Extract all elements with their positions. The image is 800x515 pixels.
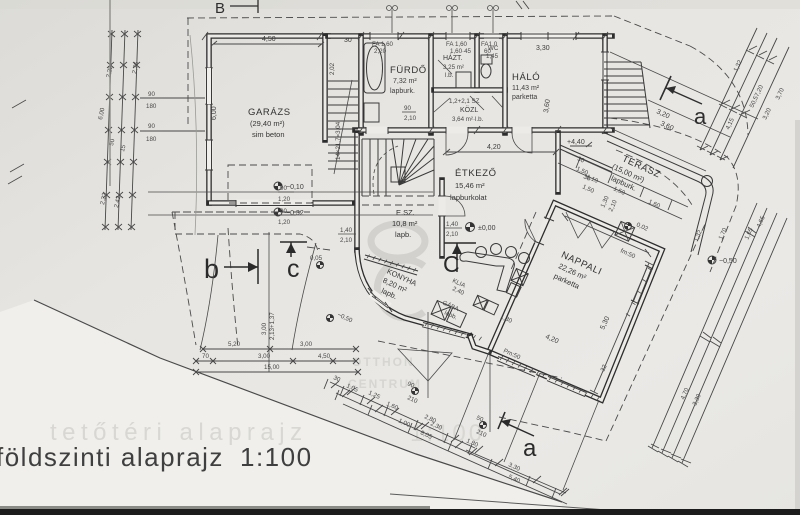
svg-text:90: 90 (148, 91, 155, 98)
svg-text:l.b.: l.b. (445, 72, 454, 79)
svg-text:15,00: 15,00 (264, 364, 280, 371)
svg-text:HÁLÓ: HÁLÓ (512, 72, 540, 83)
svg-text:sim beton: sim beton (252, 130, 285, 139)
svg-text:4,50: 4,50 (318, 353, 331, 360)
svg-text:2,13+1,37: 2,13+1,37 (269, 312, 276, 340)
svg-text:180: 180 (146, 136, 157, 143)
svg-text:90: 90 (280, 185, 287, 192)
svg-text:b: b (204, 254, 219, 284)
svg-text:70: 70 (202, 353, 209, 360)
svg-text:c: c (287, 255, 300, 283)
svg-text:90: 90 (404, 105, 411, 112)
svg-text:11,43 m²: 11,43 m² (512, 85, 540, 92)
svg-text:3,25 m²: 3,25 m² (443, 64, 464, 71)
svg-text:lapb.: lapb. (395, 230, 411, 239)
svg-text:2,10: 2,10 (446, 231, 459, 238)
svg-text:4,50: 4,50 (262, 36, 276, 43)
svg-text:5,20: 5,20 (228, 341, 241, 348)
svg-text:1:100: 1:100 (240, 442, 313, 472)
svg-text:FÜRDŐ: FÜRDŐ (390, 65, 427, 76)
svg-text:±0,00: ±0,00 (478, 225, 496, 232)
svg-text:4,20: 4,20 (487, 144, 501, 151)
svg-text:10,8 m²: 10,8 m² (392, 219, 418, 228)
svg-text:2,10: 2,10 (340, 237, 353, 244)
svg-text:90: 90 (280, 208, 287, 215)
svg-text:B: B (215, 0, 225, 17)
svg-text:GARÁZS: GARÁZS (248, 107, 291, 118)
svg-text:a: a (694, 104, 707, 129)
svg-text:3,00: 3,00 (300, 341, 313, 348)
svg-text:60: 60 (484, 48, 491, 55)
svg-text:3,00: 3,00 (261, 322, 268, 335)
svg-text:15,46 m²: 15,46 m² (455, 181, 485, 190)
svg-text:−0,50: −0,50 (719, 258, 737, 265)
svg-text:14×21,7=3,04: 14×21,7=3,04 (335, 121, 342, 160)
svg-text:C: C (443, 251, 460, 277)
svg-text:3,30: 3,30 (536, 45, 550, 52)
svg-text:KÖZL: KÖZL (460, 106, 478, 114)
svg-text:ÉTKEZŐ: ÉTKEZŐ (455, 168, 497, 179)
svg-text:7,32 m²: 7,32 m² (393, 78, 417, 85)
svg-text:1,40: 1,40 (446, 221, 459, 228)
svg-text:FA1,0: FA1,0 (481, 41, 498, 48)
svg-text:lapburkolat: lapburkolat (450, 193, 488, 202)
svg-text:+4,40: +4,40 (567, 139, 585, 146)
svg-text:2,10: 2,10 (404, 115, 417, 122)
svg-text:1,20: 1,20 (278, 219, 291, 226)
svg-text:FA 1,60: FA 1,60 (372, 41, 394, 48)
svg-text:a: a (523, 435, 537, 462)
svg-text:1,40: 1,40 (340, 227, 353, 234)
svg-text:parketta: parketta (512, 94, 537, 101)
svg-text:2,20: 2,20 (374, 48, 387, 55)
svg-text:lapburk.: lapburk. (390, 88, 415, 95)
svg-text:1,20: 1,20 (278, 196, 291, 203)
svg-text:(29,40 m²): (29,40 m²) (250, 119, 285, 128)
svg-text:3,64 m²·l.b.: 3,64 m²·l.b. (452, 116, 484, 123)
svg-text:−0,32: −0,32 (286, 210, 304, 217)
svg-text:180: 180 (146, 103, 157, 110)
svg-text:FA 1,60: FA 1,60 (446, 41, 468, 48)
svg-text:90: 90 (148, 123, 155, 130)
svg-text:2,02: 2,02 (329, 62, 336, 75)
svg-text:6,00: 6,00 (211, 106, 218, 120)
svg-text:−0,10: −0,10 (286, 184, 304, 191)
svg-text:1,60·45: 1,60·45 (450, 48, 472, 55)
svg-text:földszinti alaprajz: földszinti alaprajz (0, 442, 224, 472)
svg-text:3,00: 3,00 (258, 353, 271, 360)
svg-text:E.SZ.: E.SZ. (396, 208, 415, 217)
